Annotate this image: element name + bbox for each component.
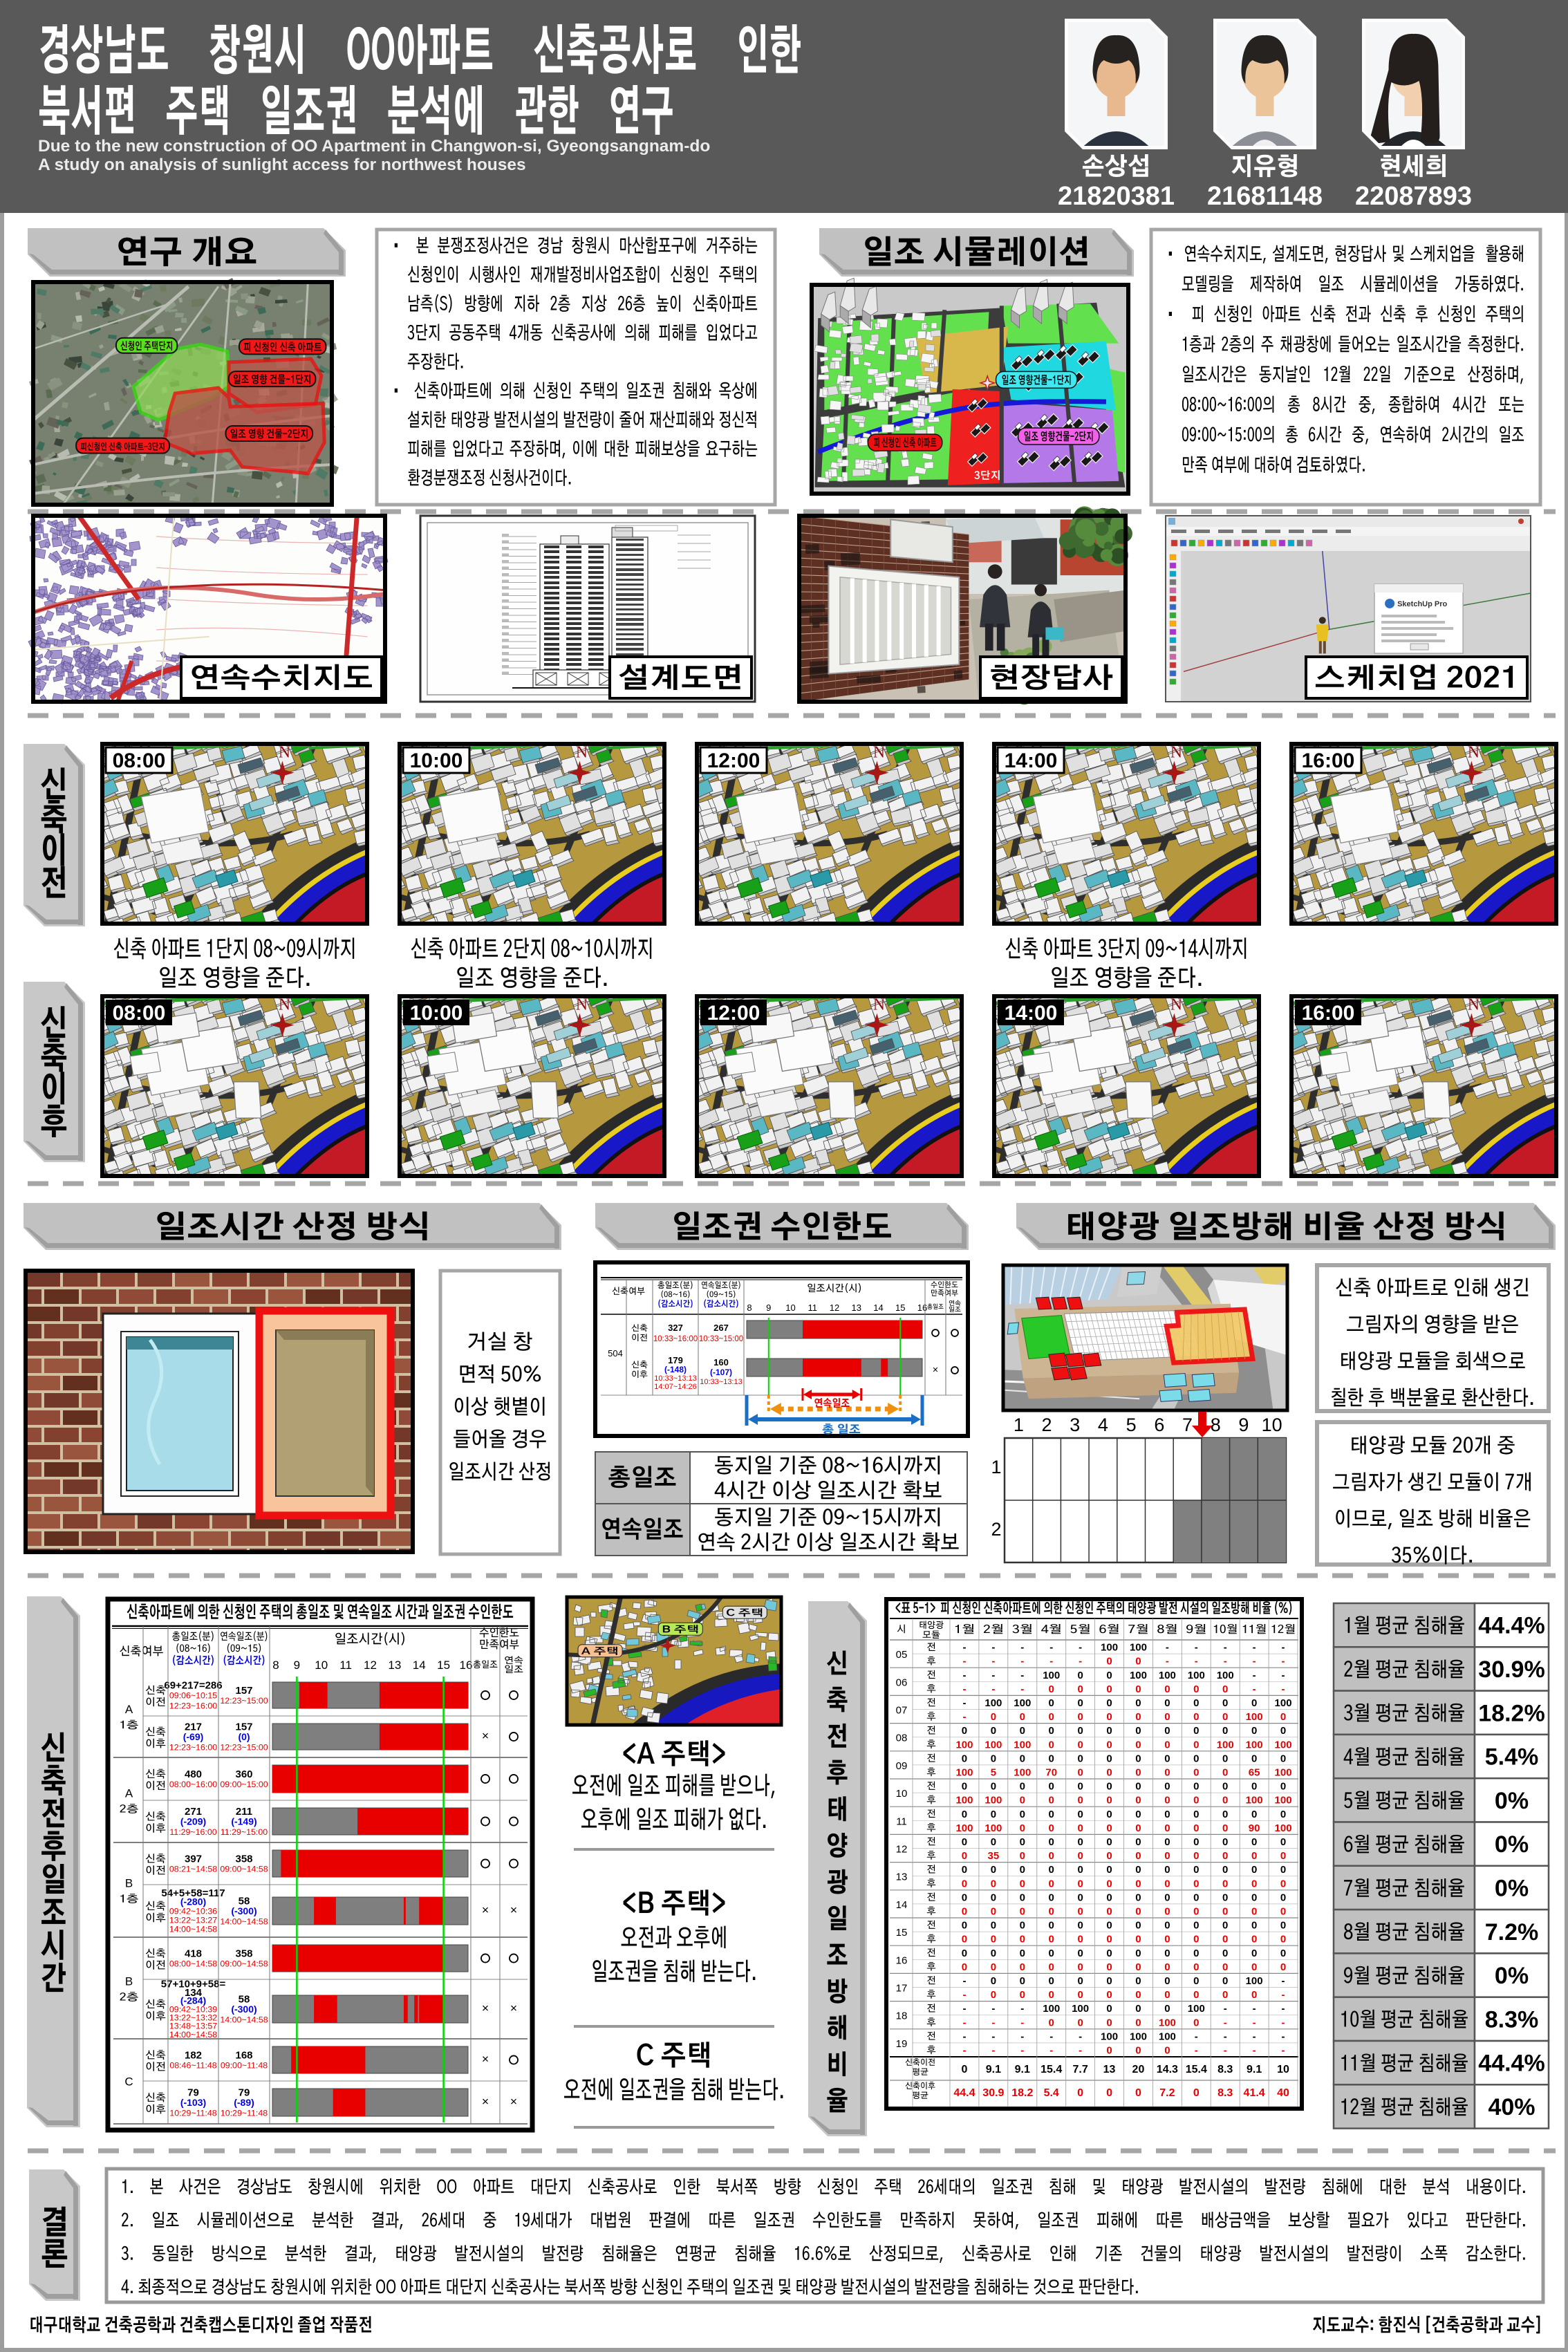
svg-text:0: 0 — [1106, 1864, 1112, 1876]
svg-text:360: 360 — [235, 1768, 252, 1780]
svg-text:0: 0 — [1135, 1934, 1141, 1945]
svg-text:(-149): (-149) — [231, 1816, 256, 1827]
svg-text:100: 100 — [1246, 1795, 1263, 1807]
svg-text:0: 0 — [1049, 1809, 1054, 1820]
svg-text:0: 0 — [1077, 1975, 1083, 1987]
svg-text:16: 16 — [896, 1954, 908, 1966]
svg-text:0: 0 — [1222, 1836, 1228, 1848]
svg-text:11:29~16:00: 11:29~16:00 — [169, 1827, 216, 1837]
svg-text:12:23~15:00: 12:23~15:00 — [220, 1696, 268, 1706]
svg-text:0: 0 — [1135, 1656, 1141, 1668]
svg-text:18.2%: 18.2% — [1478, 1700, 1544, 1726]
svg-text:0: 0 — [1049, 1836, 1054, 1848]
svg-text:10:33~13:13: 10:33~13:13 — [654, 1374, 696, 1383]
svg-text:0: 0 — [1222, 1725, 1228, 1737]
svg-text:0: 0 — [1164, 1892, 1170, 1903]
svg-text:0: 0 — [1222, 1766, 1228, 1778]
svg-text:0: 0 — [1164, 1878, 1170, 1889]
svg-text:0: 0 — [1106, 1822, 1112, 1834]
svg-text:9: 9 — [294, 1659, 300, 1672]
svg-text:100: 100 — [1217, 1670, 1234, 1681]
svg-text:-: - — [1020, 1683, 1024, 1695]
svg-text:0: 0 — [1135, 1781, 1141, 1793]
svg-text:-: - — [1166, 1656, 1169, 1668]
svg-text:0: 0 — [962, 1850, 967, 1862]
svg-text:12:23~16:00: 12:23~16:00 — [169, 1701, 217, 1710]
svg-text:-: - — [991, 1656, 995, 1668]
svg-text:100: 100 — [955, 1795, 973, 1807]
svg-text:0: 0 — [1193, 1934, 1199, 1945]
svg-text:-: - — [962, 2044, 966, 2056]
svg-text:10:29~11:48: 10:29~11:48 — [221, 2108, 268, 2118]
svg-text:0: 0 — [1106, 1850, 1112, 1862]
svg-text:0: 0 — [1020, 1892, 1025, 1903]
svg-text:0: 0 — [1222, 1975, 1228, 1987]
svg-text:-: - — [1224, 1656, 1227, 1668]
svg-text:-: - — [962, 1683, 966, 1695]
svg-text:6: 6 — [1154, 1415, 1164, 1435]
svg-text:0: 0 — [1077, 1697, 1083, 1709]
svg-text:100: 100 — [1159, 1670, 1176, 1681]
svg-text:8: 8 — [1211, 1415, 1221, 1435]
svg-text:-: - — [1253, 2003, 1256, 2015]
svg-text:0: 0 — [1106, 1683, 1112, 1695]
svg-text:09:00~14:58: 09:00~14:58 — [220, 1959, 268, 1968]
svg-text:-: - — [991, 2017, 995, 2028]
svg-text:100: 100 — [955, 1822, 973, 1834]
svg-text:0: 0 — [1164, 1697, 1170, 1709]
svg-text:11: 11 — [339, 1659, 352, 1672]
svg-text:5.4: 5.4 — [1044, 2087, 1059, 2099]
svg-text:(-209): (-209) — [180, 1816, 206, 1827]
svg-text:0: 0 — [1049, 1739, 1054, 1751]
svg-text:100: 100 — [1275, 1795, 1292, 1807]
svg-text:14: 14 — [873, 1303, 883, 1313]
svg-text:10: 10 — [315, 1659, 328, 1672]
svg-text:100: 100 — [1246, 1711, 1263, 1723]
svg-text:0: 0 — [1106, 2087, 1112, 2099]
svg-text:0: 0 — [1077, 1934, 1083, 1945]
svg-text:0: 0 — [991, 1809, 996, 1820]
svg-text:267: 267 — [713, 1323, 729, 1333]
svg-text:90: 90 — [1249, 1822, 1260, 1834]
svg-text:-: - — [1282, 1989, 1285, 2001]
svg-text:14:07~14:26: 14:07~14:26 — [654, 1383, 696, 1391]
svg-text:9.1: 9.1 — [1247, 2064, 1262, 2075]
svg-text:-: - — [1195, 1642, 1198, 1654]
svg-text:0: 0 — [1193, 2017, 1199, 2028]
svg-text:0: 0 — [1049, 1753, 1054, 1764]
svg-text:0: 0 — [1193, 1711, 1199, 1723]
svg-text:15: 15 — [896, 1927, 908, 1939]
svg-text:0: 0 — [1280, 1725, 1286, 1737]
svg-text:0: 0 — [1049, 1878, 1054, 1889]
svg-text:-: - — [1020, 1670, 1024, 1681]
svg-text:12: 12 — [896, 1844, 908, 1856]
svg-text:-: - — [1282, 2017, 1285, 2028]
svg-text:0: 0 — [1077, 1961, 1083, 1973]
svg-text:8: 8 — [747, 1303, 752, 1313]
svg-text:-: - — [1079, 1642, 1082, 1654]
svg-text:0: 0 — [1222, 1809, 1228, 1820]
svg-text:20: 20 — [1132, 2064, 1145, 2075]
svg-text:0: 0 — [1020, 1809, 1025, 1820]
svg-text:0: 0 — [991, 1920, 996, 1932]
svg-text:14: 14 — [413, 1659, 426, 1672]
svg-text:0: 0 — [1164, 1850, 1170, 1862]
svg-text:9: 9 — [766, 1303, 771, 1313]
svg-text:0: 0 — [1135, 1697, 1141, 1709]
svg-text:30.9%: 30.9% — [1478, 1656, 1544, 1683]
svg-text:0: 0 — [1164, 1989, 1170, 2001]
svg-text:0: 0 — [991, 1892, 996, 1903]
svg-text:0: 0 — [1049, 1795, 1054, 1807]
svg-text:2: 2 — [991, 1519, 1001, 1540]
svg-text:0: 0 — [1193, 1836, 1199, 1848]
svg-text:0: 0 — [1049, 1822, 1054, 1834]
svg-text:0: 0 — [1049, 1697, 1054, 1709]
svg-text:08:00: 08:00 — [113, 1002, 166, 1025]
svg-text:0: 0 — [1106, 1725, 1112, 1737]
svg-text:0: 0 — [991, 1878, 996, 1889]
svg-text:-: - — [1282, 2031, 1285, 2042]
svg-text:0: 0 — [962, 1753, 967, 1764]
svg-text:0: 0 — [1020, 1850, 1025, 1862]
svg-text:0: 0 — [1106, 1878, 1112, 1889]
svg-text:0: 0 — [1280, 1864, 1286, 1876]
svg-text:0: 0 — [962, 1934, 967, 1945]
svg-text:13: 13 — [896, 1872, 908, 1883]
svg-text:0: 0 — [1135, 1683, 1141, 1695]
svg-text:15.4: 15.4 — [1040, 2064, 1062, 2075]
svg-text:-: - — [1224, 2017, 1227, 2028]
svg-text:21820381: 21820381 — [1058, 182, 1175, 211]
svg-text:08:21~14:58: 08:21~14:58 — [169, 1864, 217, 1874]
svg-text:0: 0 — [1049, 1850, 1054, 1862]
svg-text:0: 0 — [1193, 1864, 1199, 1876]
svg-text:0: 0 — [962, 1948, 967, 1959]
svg-text:100: 100 — [1101, 1642, 1118, 1654]
svg-text:10:29~11:48: 10:29~11:48 — [169, 2108, 216, 2118]
svg-text:×: × — [510, 2095, 517, 2109]
svg-text:-: - — [962, 1656, 966, 1668]
svg-text:0: 0 — [1135, 1892, 1141, 1903]
svg-text:0: 0 — [1077, 1864, 1083, 1876]
svg-text:0: 0 — [1164, 1822, 1170, 1834]
svg-text:-: - — [1224, 2003, 1227, 2015]
svg-text:-: - — [1049, 1642, 1053, 1654]
svg-text:-: - — [1282, 1670, 1285, 1681]
svg-text:0: 0 — [1077, 1739, 1083, 1751]
svg-text:0: 0 — [1049, 1892, 1054, 1903]
svg-text:0: 0 — [1077, 1905, 1083, 1917]
svg-text:09:06~10:15: 09:06~10:15 — [169, 1690, 217, 1700]
svg-text:9.1: 9.1 — [1015, 2064, 1030, 2075]
svg-text:4: 4 — [1098, 1415, 1108, 1435]
svg-text:0: 0 — [1164, 1766, 1170, 1778]
svg-text:15: 15 — [895, 1303, 905, 1313]
svg-text:0: 0 — [1164, 1961, 1170, 1973]
svg-text:100: 100 — [1275, 1739, 1292, 1751]
svg-text:09:00~14:58: 09:00~14:58 — [220, 1864, 268, 1874]
svg-text:-: - — [1253, 1670, 1256, 1681]
svg-text:44.4: 44.4 — [953, 2087, 975, 2099]
svg-text:17: 17 — [896, 1983, 908, 1995]
svg-text:100: 100 — [1014, 1766, 1031, 1778]
svg-text:0: 0 — [1280, 1892, 1286, 1903]
svg-text:14:00: 14:00 — [1005, 749, 1058, 772]
svg-text:08: 08 — [896, 1733, 908, 1744]
svg-text:13:22~13:27: 13:22~13:27 — [169, 1916, 217, 1925]
svg-text:-: - — [1049, 2044, 1053, 2056]
svg-text:100: 100 — [1188, 1670, 1205, 1681]
svg-text:-: - — [1079, 2044, 1082, 2056]
svg-text:0: 0 — [1193, 1795, 1199, 1807]
svg-text:B: B — [125, 1975, 133, 1988]
svg-text:397: 397 — [185, 1853, 202, 1865]
svg-text:100: 100 — [984, 1697, 1002, 1709]
svg-text:A: A — [125, 1703, 133, 1716]
svg-text:0: 0 — [962, 1781, 967, 1793]
svg-text:16:00: 16:00 — [1302, 749, 1355, 772]
svg-text:10:33~15:00: 10:33~15:00 — [699, 1335, 743, 1343]
svg-text:182: 182 — [185, 2049, 202, 2061]
svg-text:0: 0 — [1164, 1809, 1170, 1820]
svg-text:08:00~14:58: 08:00~14:58 — [169, 1959, 217, 1968]
svg-text:0: 0 — [1106, 1961, 1112, 1973]
svg-text:0: 0 — [1049, 1948, 1054, 1959]
svg-text:9: 9 — [1238, 1415, 1249, 1435]
svg-text:168: 168 — [235, 2049, 252, 2061]
svg-text:0: 0 — [1020, 1878, 1025, 1889]
svg-text:-: - — [1253, 1642, 1256, 1654]
svg-text:8.3%: 8.3% — [1485, 2006, 1539, 2033]
svg-text:0: 0 — [1020, 1836, 1025, 1848]
svg-text:×: × — [933, 1365, 938, 1376]
svg-text:7: 7 — [1182, 1415, 1193, 1435]
svg-text:0: 0 — [1135, 1989, 1141, 2001]
svg-text:11: 11 — [808, 1303, 818, 1313]
svg-text:0: 0 — [1251, 1753, 1257, 1764]
svg-text:-: - — [1224, 1642, 1227, 1654]
svg-text:0: 0 — [1077, 1725, 1083, 1737]
svg-text:14: 14 — [896, 1899, 908, 1911]
svg-text:0: 0 — [1020, 1934, 1025, 1945]
svg-text:0: 0 — [1049, 1864, 1054, 1876]
svg-text:-: - — [962, 1670, 966, 1681]
svg-text:C: C — [124, 2075, 133, 2089]
svg-text:100: 100 — [955, 1766, 973, 1778]
svg-text:0: 0 — [1193, 1878, 1199, 1889]
svg-text:09:00~15:00: 09:00~15:00 — [220, 1780, 268, 1789]
svg-text:69+217=286: 69+217=286 — [164, 1679, 222, 1691]
svg-text:0: 0 — [1222, 1697, 1228, 1709]
svg-text:11:29~15:00: 11:29~15:00 — [221, 1827, 268, 1837]
svg-text:0: 0 — [1280, 1934, 1286, 1945]
svg-text:0%: 0% — [1495, 1831, 1529, 1858]
svg-text:15: 15 — [437, 1659, 450, 1672]
svg-text:0: 0 — [1135, 1975, 1141, 1987]
svg-text:0: 0 — [962, 1961, 967, 1973]
svg-text:-: - — [991, 1642, 995, 1654]
svg-text:0: 0 — [1106, 1989, 1112, 2001]
svg-text:0: 0 — [991, 1961, 996, 1973]
svg-text:10: 10 — [896, 1788, 908, 1800]
svg-text:0: 0 — [1193, 1683, 1199, 1695]
svg-text:07: 07 — [896, 1705, 908, 1717]
svg-text:0: 0 — [1135, 1905, 1141, 1917]
svg-text:0: 0 — [1049, 1711, 1054, 1723]
svg-text:(-148): (-148) — [664, 1365, 687, 1374]
svg-text:0: 0 — [1106, 1766, 1112, 1778]
svg-text:100: 100 — [984, 1795, 1002, 1807]
svg-text:5: 5 — [1126, 1415, 1137, 1435]
svg-text:-: - — [1079, 1656, 1082, 1668]
svg-text:0: 0 — [1193, 1781, 1199, 1793]
svg-text:0: 0 — [1280, 1905, 1286, 1917]
svg-text:0: 0 — [962, 1864, 967, 1876]
svg-text:1: 1 — [1014, 1415, 1024, 1435]
svg-text:0: 0 — [1193, 1948, 1199, 1959]
svg-text:0: 0 — [1077, 1670, 1083, 1681]
svg-text:0: 0 — [1020, 1989, 1025, 2001]
svg-text:0: 0 — [1222, 1864, 1228, 1876]
svg-text:65: 65 — [1249, 1766, 1260, 1778]
svg-text:0: 0 — [991, 1975, 996, 1987]
svg-text:×: × — [482, 2052, 489, 2066]
svg-text:(-89): (-89) — [234, 2097, 254, 2108]
svg-text:0: 0 — [1049, 1961, 1054, 1973]
svg-text:0: 0 — [1164, 1711, 1170, 1723]
svg-text:0: 0 — [1077, 1878, 1083, 1889]
svg-text:0: 0 — [1135, 2017, 1141, 2028]
svg-text:-: - — [1224, 2044, 1227, 2056]
svg-text:0: 0 — [1135, 1864, 1141, 1876]
svg-text:100: 100 — [1188, 2003, 1205, 2015]
svg-text:8: 8 — [272, 1659, 279, 1672]
svg-text:×: × — [482, 2095, 489, 2109]
svg-text:358: 358 — [235, 1948, 252, 1959]
svg-text:-: - — [991, 2003, 995, 2015]
svg-text:-: - — [962, 1711, 966, 1723]
svg-text:0: 0 — [1164, 1781, 1170, 1793]
svg-text:(-107): (-107) — [710, 1368, 732, 1377]
svg-text:-: - — [1253, 2044, 1256, 2056]
svg-text:0: 0 — [1164, 1739, 1170, 1751]
svg-text:0: 0 — [1164, 1836, 1170, 1848]
svg-text:100: 100 — [1159, 2031, 1176, 2042]
svg-text:-: - — [1049, 2031, 1053, 2042]
svg-text:0: 0 — [1106, 2003, 1112, 2015]
svg-text:358: 358 — [235, 1853, 252, 1865]
svg-text:12:00: 12:00 — [707, 1002, 760, 1025]
svg-text:-: - — [1253, 2031, 1256, 2042]
svg-text:0: 0 — [991, 1781, 996, 1793]
svg-text:0: 0 — [1251, 1961, 1257, 1973]
svg-text:0: 0 — [962, 1892, 967, 1903]
svg-text:13: 13 — [852, 1303, 861, 1313]
svg-text:0: 0 — [1222, 1961, 1228, 1973]
svg-text:0: 0 — [1135, 2044, 1141, 2056]
svg-text:0: 0 — [1020, 1948, 1025, 1959]
svg-text:×: × — [482, 1903, 489, 1917]
svg-text:0: 0 — [1280, 1809, 1286, 1820]
svg-text:×: × — [510, 1903, 517, 1917]
svg-text:-: - — [1020, 2003, 1024, 2015]
svg-text:0: 0 — [991, 1725, 996, 1737]
svg-text:157: 157 — [235, 1685, 252, 1697]
svg-text:11: 11 — [896, 1816, 907, 1827]
svg-text:10: 10 — [1277, 2064, 1289, 2075]
svg-text:8.3: 8.3 — [1217, 2087, 1233, 2099]
svg-text:0: 0 — [1164, 1934, 1170, 1945]
svg-text:0: 0 — [962, 1920, 967, 1932]
svg-text:0: 0 — [1164, 1905, 1170, 1917]
svg-text:14:00~14:58: 14:00~14:58 — [169, 1925, 217, 1934]
svg-text:09: 09 — [896, 1760, 908, 1772]
svg-text:100: 100 — [1246, 1975, 1263, 1987]
svg-text:44.4%: 44.4% — [1478, 1613, 1544, 1639]
svg-text:0: 0 — [1280, 1878, 1286, 1889]
svg-text:0: 0 — [1020, 1711, 1025, 1723]
svg-text:0: 0 — [1106, 1795, 1112, 1807]
svg-text:0: 0 — [1135, 1961, 1141, 1973]
svg-text:0: 0 — [991, 1934, 996, 1945]
svg-text:9.1: 9.1 — [986, 2064, 1001, 2075]
svg-text:0: 0 — [1193, 1822, 1199, 1834]
svg-text:SketchUp Pro: SketchUp Pro — [1397, 600, 1447, 608]
svg-text:-: - — [1020, 2044, 1024, 2056]
svg-text:0: 0 — [1106, 2044, 1112, 2056]
svg-text:0: 0 — [1020, 1920, 1025, 1932]
svg-text:0: 0 — [1106, 1892, 1112, 1903]
svg-text:12:23~16:00: 12:23~16:00 — [169, 1742, 217, 1752]
svg-text:0: 0 — [1077, 1809, 1083, 1820]
svg-text:0: 0 — [1049, 2017, 1054, 2028]
svg-text:0: 0 — [991, 1864, 996, 1876]
svg-text:30.9: 30.9 — [982, 2087, 1004, 2099]
svg-text:100: 100 — [1101, 2031, 1118, 2042]
svg-text:0: 0 — [1020, 1781, 1025, 1793]
svg-text:0: 0 — [962, 1878, 967, 1889]
svg-text:14:00~14:58: 14:00~14:58 — [220, 2015, 268, 2024]
svg-text:-: - — [1195, 1656, 1198, 1668]
svg-text:0: 0 — [1280, 1711, 1286, 1723]
svg-text:0: 0 — [1135, 1711, 1141, 1723]
svg-text:0: 0 — [1049, 1920, 1054, 1932]
svg-text:0: 0 — [1280, 1753, 1286, 1764]
svg-text:0: 0 — [1222, 1753, 1228, 1764]
svg-text:A study on analysis of sunligh: A study on analysis of sunlight access f… — [38, 156, 526, 174]
svg-text:3: 3 — [1070, 1415, 1080, 1435]
svg-text:0: 0 — [1193, 1809, 1199, 1820]
svg-text:10:00: 10:00 — [410, 1002, 463, 1025]
svg-text:100: 100 — [1043, 2003, 1060, 2015]
svg-text:0: 0 — [1222, 1905, 1228, 1917]
svg-text:21681148: 21681148 — [1207, 182, 1323, 211]
svg-text:0: 0 — [1106, 1905, 1112, 1917]
svg-text:0: 0 — [1222, 1711, 1228, 1723]
svg-text:12: 12 — [364, 1659, 377, 1672]
svg-text:100: 100 — [1043, 1670, 1060, 1681]
svg-text:0: 0 — [962, 1905, 967, 1917]
svg-text:06: 06 — [896, 1677, 908, 1688]
svg-text:0: 0 — [1222, 1934, 1228, 1945]
svg-text:70: 70 — [1045, 1766, 1057, 1778]
svg-text:0: 0 — [1164, 1948, 1170, 1959]
svg-text:40: 40 — [1277, 2087, 1289, 2099]
svg-text:0: 0 — [1251, 1989, 1257, 2001]
